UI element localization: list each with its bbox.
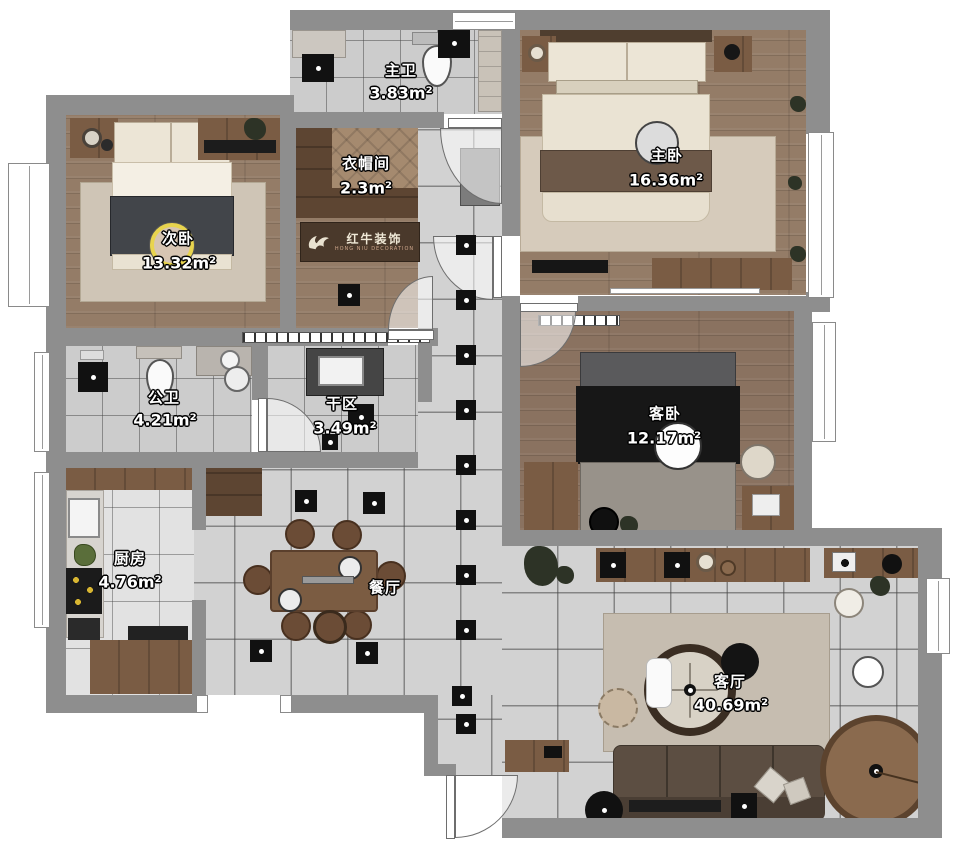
wall bbox=[794, 311, 812, 546]
window bbox=[34, 352, 50, 452]
downlight bbox=[456, 235, 476, 255]
bed-pillows bbox=[548, 42, 706, 82]
utensil-tray bbox=[302, 576, 354, 584]
room-label-second-bedroom: 次卧 bbox=[162, 228, 194, 249]
downlight bbox=[456, 400, 476, 420]
wall-shelf bbox=[610, 288, 760, 294]
tray bbox=[646, 658, 672, 708]
decor-box bbox=[544, 746, 562, 758]
room-label-public-bath: 公卫 bbox=[148, 387, 180, 408]
plant bbox=[788, 176, 802, 190]
entry-door-leaf bbox=[448, 118, 502, 128]
shower-drain bbox=[438, 28, 470, 58]
bath-shelf bbox=[478, 30, 502, 112]
guest-door-leaf bbox=[520, 303, 578, 312]
room-area-kitchen: 4.76m² bbox=[98, 573, 161, 592]
wall bbox=[502, 296, 520, 311]
desk-chair bbox=[740, 444, 776, 480]
wall bbox=[502, 128, 520, 236]
bull-logo-icon bbox=[306, 232, 330, 252]
wall bbox=[46, 95, 294, 115]
faucet bbox=[80, 350, 104, 360]
door-frame bbox=[196, 695, 208, 713]
decor-tray bbox=[528, 44, 546, 62]
window bbox=[452, 12, 516, 30]
decor-tray bbox=[696, 552, 716, 572]
dining-chair bbox=[332, 520, 362, 550]
downlight bbox=[456, 714, 476, 734]
decor-tray bbox=[724, 44, 740, 60]
plant-tray bbox=[74, 544, 96, 566]
dining-chair bbox=[243, 565, 273, 595]
wall bbox=[502, 530, 812, 546]
window bbox=[926, 578, 950, 654]
wall bbox=[252, 345, 268, 400]
dining-chair bbox=[285, 519, 315, 549]
round-table-knob bbox=[869, 764, 883, 778]
window bbox=[812, 322, 836, 442]
dining-chair bbox=[281, 611, 311, 641]
wall bbox=[794, 528, 942, 546]
coffee-table-knob bbox=[684, 684, 696, 696]
room-area-cloakroom: 2.3m² bbox=[340, 179, 392, 198]
bolster-pillows bbox=[556, 80, 698, 94]
downlight bbox=[338, 284, 360, 306]
bed-pillows bbox=[580, 352, 736, 388]
desk-chair bbox=[834, 588, 864, 618]
wall bbox=[290, 10, 830, 30]
lower-cabinets bbox=[90, 640, 196, 694]
bath-door-leaf bbox=[258, 398, 267, 452]
stove bbox=[66, 568, 102, 614]
printer bbox=[832, 552, 856, 572]
wall bbox=[292, 695, 438, 713]
decor-disc bbox=[101, 139, 113, 151]
room-area-public-bath: 4.21m² bbox=[133, 411, 196, 430]
upper-cabinets bbox=[66, 468, 192, 490]
room-label-kitchen: 厨房 bbox=[114, 548, 146, 569]
plant bbox=[870, 576, 890, 596]
wall bbox=[502, 818, 942, 838]
room-label-master-bath: 主卫 bbox=[385, 60, 417, 81]
room-area-dry-area: 3.49m² bbox=[313, 419, 376, 438]
passage-floor bbox=[436, 695, 502, 775]
wall bbox=[290, 112, 444, 128]
tv bbox=[532, 260, 608, 273]
window bbox=[34, 472, 50, 628]
room-label-dry-area: 干区 bbox=[326, 393, 358, 414]
toilet-tank bbox=[136, 346, 182, 359]
room-label-guest-bedroom: 客卧 bbox=[649, 403, 681, 424]
room-area-living: 40.69m² bbox=[694, 696, 768, 715]
bay-window bbox=[8, 163, 50, 307]
ceiling-fan bbox=[224, 366, 250, 392]
headboard bbox=[540, 30, 712, 42]
downlight bbox=[295, 490, 317, 512]
wall bbox=[192, 600, 206, 696]
desk-lamp bbox=[882, 554, 902, 574]
downlight bbox=[250, 640, 272, 662]
stool bbox=[313, 610, 347, 644]
room-area-master-bedroom: 16.36m² bbox=[629, 171, 703, 190]
decor-tray bbox=[720, 560, 736, 576]
downlight bbox=[456, 620, 476, 640]
brand-subtitle: HONG NIU DECORATION bbox=[335, 247, 414, 252]
tv bbox=[204, 140, 276, 153]
master-door-leaf bbox=[493, 236, 502, 298]
downlight bbox=[456, 565, 476, 585]
speaker bbox=[664, 552, 690, 578]
washing-machine bbox=[78, 362, 108, 392]
downlight bbox=[356, 642, 378, 664]
room-label-master-bedroom: 主卧 bbox=[651, 145, 683, 166]
downlight bbox=[363, 492, 385, 514]
cutting-board bbox=[68, 618, 100, 640]
bed-sheet bbox=[112, 162, 232, 198]
round-table bbox=[820, 715, 932, 827]
plant bbox=[556, 566, 574, 584]
room-label-cloakroom: 衣帽间 bbox=[342, 153, 390, 174]
pouf bbox=[598, 688, 638, 728]
window bbox=[808, 132, 834, 298]
desk-pad bbox=[752, 494, 780, 516]
wardrobe bbox=[524, 462, 578, 540]
sofa-console bbox=[629, 800, 721, 812]
wall bbox=[46, 452, 418, 468]
wall bbox=[46, 695, 196, 713]
kitchen-sink bbox=[68, 498, 100, 538]
wall bbox=[280, 115, 296, 345]
downlight bbox=[456, 455, 476, 475]
downlight bbox=[456, 345, 476, 365]
bedroom-door-leaf bbox=[388, 330, 434, 340]
plant bbox=[524, 546, 558, 586]
bed-blanket bbox=[542, 94, 710, 152]
plant bbox=[790, 246, 806, 262]
bed-foot-sheet bbox=[542, 192, 710, 222]
place-setting bbox=[278, 588, 302, 612]
downlight bbox=[456, 510, 476, 530]
downlight bbox=[452, 686, 472, 706]
plant bbox=[244, 118, 266, 140]
washing-machine bbox=[302, 54, 334, 82]
room-area-second-bedroom: 13.32m² bbox=[142, 254, 216, 273]
wall bbox=[502, 311, 520, 546]
wall bbox=[418, 345, 432, 402]
side-table bbox=[731, 793, 757, 819]
brand-name: 红牛装饰 bbox=[346, 233, 402, 245]
balcony-door-leaf bbox=[446, 775, 455, 839]
media-cabinet bbox=[198, 118, 280, 160]
brand-cabinet: 红牛装饰 HONG NIU DECORATION bbox=[300, 222, 420, 262]
wall bbox=[806, 10, 830, 134]
range-hood bbox=[128, 626, 188, 640]
room-label-living: 客厅 bbox=[714, 671, 746, 692]
room-area-guest-bedroom: 12.17m² bbox=[627, 429, 701, 448]
ceiling-light bbox=[852, 656, 884, 688]
plant bbox=[790, 96, 806, 112]
wash-basin bbox=[318, 356, 364, 386]
cloakroom-wardrobe bbox=[296, 128, 332, 190]
tv-cabinet bbox=[652, 258, 792, 290]
wall bbox=[578, 296, 812, 311]
speaker bbox=[600, 552, 626, 578]
room-area-master-bath: 3.83m² bbox=[369, 84, 432, 103]
floor-plan: 红牛装饰 HONG NIU DECORATION bbox=[0, 0, 960, 864]
decor-disc bbox=[82, 128, 102, 148]
downlight bbox=[456, 290, 476, 310]
door-frame bbox=[280, 695, 292, 713]
wall bbox=[192, 468, 206, 530]
room-label-dining: 餐厅 bbox=[369, 577, 401, 598]
